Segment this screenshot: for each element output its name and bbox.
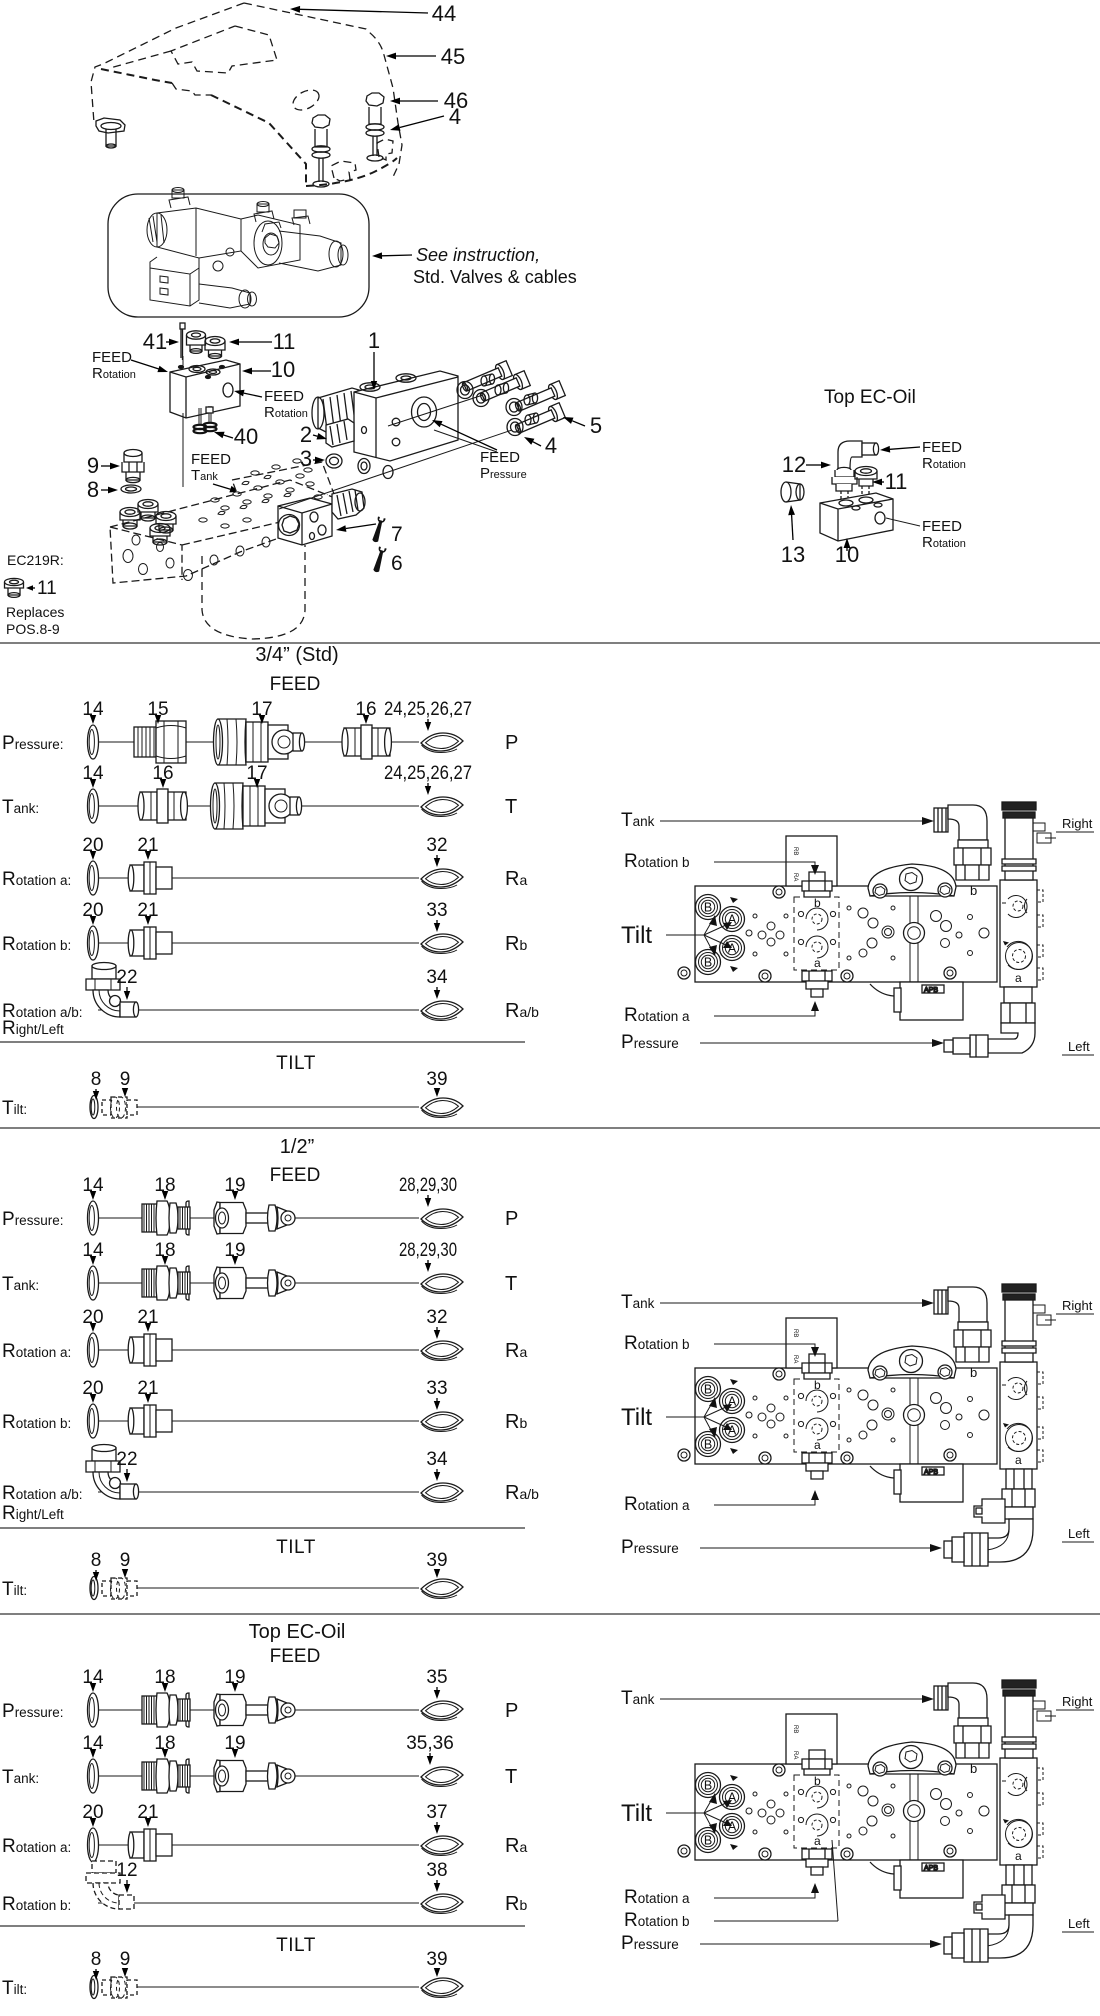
svg-text:7: 7: [391, 523, 403, 546]
svg-text:24,25,26,27: 24,25,26,27: [384, 763, 472, 784]
svg-text:40: 40: [234, 424, 258, 449]
svg-text:Rotation b: Rotation b: [624, 851, 690, 872]
svg-text:Right/Left: Right/Left: [2, 1503, 64, 1524]
svg-text:45: 45: [441, 44, 465, 69]
svg-text:Rb: Rb: [505, 1893, 527, 1915]
svg-text:P: P: [505, 1208, 518, 1230]
svg-text:Right: Right: [1062, 816, 1093, 831]
svg-text:Pressure:: Pressure:: [2, 1701, 63, 1722]
svg-text:34: 34: [426, 967, 448, 988]
svg-text:See instruction,: See instruction,: [416, 245, 540, 265]
svg-text:Replaces: Replaces: [6, 604, 64, 620]
svg-text:FEED: FEED: [264, 388, 304, 405]
svg-text:FEED: FEED: [270, 1165, 321, 1186]
svg-text:Tilt: Tilt: [621, 1404, 652, 1431]
svg-text:Rotation a: Rotation a: [624, 1494, 690, 1515]
svg-text:Ra/b: Ra/b: [505, 1000, 539, 1022]
svg-text:5: 5: [590, 413, 602, 438]
svg-text:28,29,30: 28,29,30: [399, 1175, 457, 1196]
svg-text:Tank:: Tank:: [2, 1274, 39, 1295]
svg-text:8: 8: [87, 477, 99, 502]
svg-text:Pressure: Pressure: [621, 1537, 679, 1558]
svg-text:Pressure:: Pressure:: [2, 733, 63, 754]
svg-text:Ra: Ra: [505, 868, 527, 890]
svg-text:44: 44: [432, 1, 456, 26]
svg-text:37: 37: [426, 1802, 447, 1823]
svg-text:Left: Left: [1068, 1039, 1090, 1054]
svg-text:Rotation a:: Rotation a:: [2, 869, 71, 890]
svg-text:Ra: Ra: [505, 1835, 527, 1857]
svg-text:P: P: [505, 1700, 518, 1722]
svg-text:FEED: FEED: [480, 449, 520, 466]
svg-text:35,36: 35,36: [406, 1733, 454, 1754]
svg-text:33: 33: [426, 1378, 447, 1399]
svg-text:9: 9: [120, 1550, 131, 1571]
svg-text:Tank: Tank: [621, 1292, 655, 1313]
svg-text:Tilt:: Tilt:: [2, 1978, 27, 1999]
svg-text:Tilt: Tilt: [621, 1800, 652, 1827]
svg-text:11: 11: [273, 329, 296, 354]
svg-text:8: 8: [91, 1069, 102, 1090]
svg-text:FEED: FEED: [92, 349, 132, 366]
svg-text:41: 41: [143, 329, 167, 354]
svg-text:Rotation a: Rotation a: [624, 1005, 690, 1026]
svg-text:Top EC-Oil: Top EC-Oil: [824, 387, 916, 408]
svg-text:Rotation a:: Rotation a:: [2, 1836, 71, 1857]
svg-text:Right/Left: Right/Left: [2, 1018, 64, 1039]
svg-text:4: 4: [545, 433, 557, 458]
svg-text:1: 1: [368, 328, 380, 353]
svg-text:Tilt: Tilt: [621, 922, 652, 949]
svg-text:Rotation a:: Rotation a:: [2, 1341, 71, 1362]
svg-text:6: 6: [391, 552, 403, 575]
svg-text:4: 4: [449, 104, 461, 129]
svg-text:32: 32: [426, 835, 447, 856]
svg-text:8: 8: [91, 1550, 102, 1571]
svg-text:39: 39: [426, 1069, 447, 1090]
svg-text:3: 3: [300, 446, 312, 471]
svg-text:1/2”: 1/2”: [280, 1136, 314, 1158]
svg-text:FEED: FEED: [922, 518, 962, 535]
svg-text:Right: Right: [1062, 1298, 1093, 1313]
svg-text:Rotation b: Rotation b: [624, 1910, 690, 1931]
svg-text:35: 35: [426, 1667, 447, 1688]
svg-text:FEED: FEED: [270, 1646, 321, 1667]
svg-text:12: 12: [116, 1860, 137, 1881]
svg-text:11: 11: [885, 469, 908, 494]
svg-text:FEED: FEED: [922, 439, 962, 456]
svg-text:Tank: Tank: [621, 1688, 655, 1709]
svg-text:Tilt:: Tilt:: [2, 1098, 27, 1119]
svg-text:22: 22: [116, 967, 137, 988]
svg-text:22: 22: [116, 1449, 137, 1470]
svg-text:T: T: [505, 1766, 517, 1788]
svg-text:32: 32: [426, 1307, 447, 1328]
svg-text:Rotation a/b:: Rotation a/b:: [2, 1483, 83, 1504]
svg-text:Top EC-Oil: Top EC-Oil: [249, 1621, 346, 1643]
svg-text:Rb: Rb: [505, 933, 527, 955]
svg-text:33: 33: [426, 900, 447, 921]
svg-text:Tank:: Tank:: [2, 797, 39, 818]
svg-text:TILT: TILT: [276, 1053, 316, 1074]
svg-text:Std. Valves & cables: Std. Valves & cables: [413, 267, 577, 287]
svg-text:9: 9: [87, 453, 99, 478]
svg-text:11: 11: [37, 578, 57, 599]
svg-text:13: 13: [781, 542, 805, 567]
svg-text:FEED: FEED: [191, 451, 231, 468]
svg-text:Right: Right: [1062, 1694, 1093, 1709]
svg-text:TILT: TILT: [276, 1935, 316, 1956]
svg-text:Tank: Tank: [621, 810, 655, 831]
svg-text:T: T: [505, 796, 517, 818]
svg-text:Tilt:: Tilt:: [2, 1579, 27, 1600]
svg-text:9: 9: [120, 1069, 131, 1090]
svg-text:10: 10: [271, 357, 295, 382]
svg-text:39: 39: [426, 1949, 447, 1970]
svg-text:T: T: [505, 1273, 517, 1295]
svg-text:POS.8-9: POS.8-9: [6, 621, 60, 637]
svg-text:Ra: Ra: [505, 1340, 527, 1362]
svg-text:8: 8: [91, 1949, 102, 1970]
svg-text:TILT: TILT: [276, 1537, 316, 1558]
svg-text:Rb: Rb: [505, 1411, 527, 1433]
svg-text:Rotation b:: Rotation b:: [2, 1412, 71, 1433]
svg-text:28,29,30: 28,29,30: [399, 1240, 457, 1261]
svg-text:34: 34: [426, 1449, 448, 1470]
svg-text:Left: Left: [1068, 1916, 1090, 1931]
svg-text:Rotation a: Rotation a: [624, 1887, 690, 1908]
svg-text:FEED: FEED: [270, 674, 321, 695]
svg-text:Pressure:: Pressure:: [2, 1209, 63, 1230]
svg-text:Ra/b: Ra/b: [505, 1482, 539, 1504]
svg-text:Pressure: Pressure: [621, 1032, 679, 1053]
svg-text:Rotation b: Rotation b: [624, 1333, 690, 1354]
svg-text:Left: Left: [1068, 1526, 1090, 1541]
svg-text:Rotation b:: Rotation b:: [2, 934, 71, 955]
svg-text:Rotation b:: Rotation b:: [2, 1894, 71, 1915]
svg-text:39: 39: [426, 1550, 447, 1571]
svg-text:2: 2: [300, 422, 312, 447]
svg-text:38: 38: [426, 1860, 447, 1881]
svg-text:9: 9: [120, 1949, 131, 1970]
svg-text:Pressure: Pressure: [621, 1933, 679, 1954]
svg-text:P: P: [505, 732, 518, 754]
svg-text:12: 12: [782, 452, 806, 477]
svg-text:Tank:: Tank:: [2, 1767, 39, 1788]
svg-text:24,25,26,27: 24,25,26,27: [384, 699, 472, 720]
svg-text:3/4” (Std): 3/4” (Std): [255, 644, 338, 666]
svg-text:EC219R:: EC219R:: [7, 552, 64, 568]
